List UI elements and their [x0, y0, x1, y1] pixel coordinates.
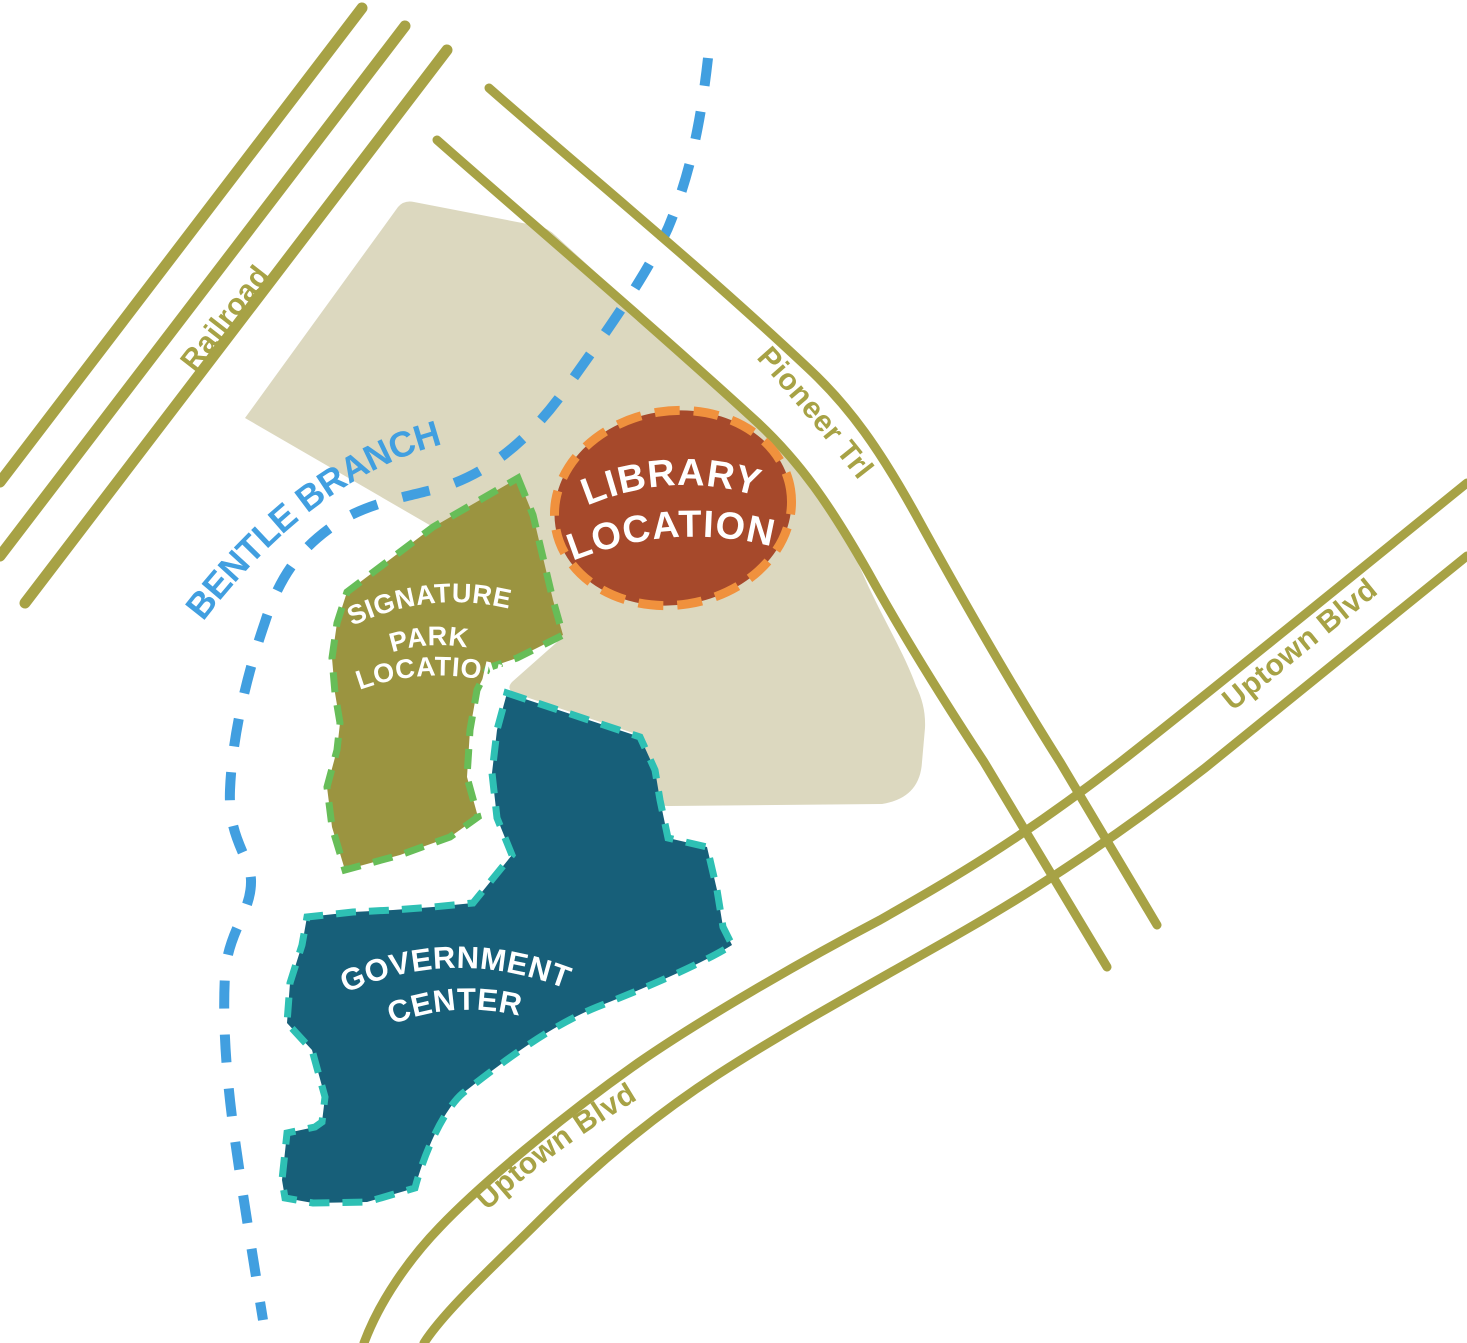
railroad-label: Railroad — [174, 259, 276, 377]
map-canvas: Railroad Pioneer Trl Uptown Blvd Uptown … — [0, 0, 1467, 1343]
location-map: Railroad Pioneer Trl Uptown Blvd Uptown … — [0, 0, 1467, 1343]
